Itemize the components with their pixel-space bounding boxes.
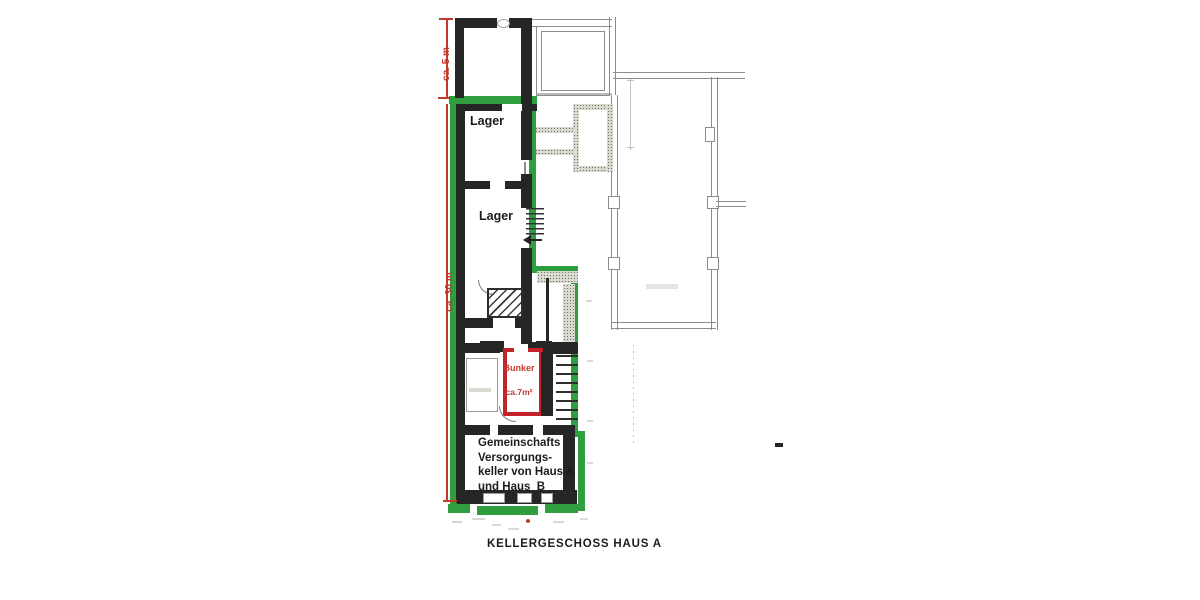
gemeinschafts-line-2: Versorgungs- — [478, 451, 578, 466]
dimension-tick — [439, 18, 453, 20]
pilaster — [608, 196, 620, 209]
room-label-bunker-area: ca.7m² — [503, 387, 535, 397]
wall-segment — [505, 181, 521, 189]
dimension-tick — [627, 80, 634, 81]
wall-segment — [457, 181, 490, 189]
window — [497, 19, 510, 28]
wall-thin-segment — [716, 201, 746, 207]
wall-segment — [457, 318, 493, 328]
boundary-outline-green — [545, 504, 578, 513]
room-label-lager-lower: Lager — [479, 209, 513, 223]
wall-hatched — [563, 284, 575, 344]
stair-direction-arrow — [523, 235, 531, 245]
wall-segment — [521, 174, 532, 208]
wall-segment — [457, 104, 502, 111]
red-mark — [526, 519, 530, 523]
floor-plan-canvas: ca. 5 m ca. 30 m Lager Lager Bunker ca.7… — [0, 0, 1200, 600]
gemeinschafts-line-1: Gemeinschafts — [478, 436, 578, 451]
wall-hatched — [535, 127, 575, 133]
wall-hatched — [607, 104, 613, 172]
wall-segment — [456, 104, 465, 503]
wall-segment — [546, 278, 549, 342]
faint-dimension-mark — [586, 300, 592, 302]
plan-title: KELLERGESCHOSS HAUS A — [487, 538, 662, 550]
staircase-upper — [526, 208, 544, 236]
pilaster — [608, 257, 620, 270]
boundary-outline-green — [448, 504, 470, 513]
room-label-lager-upper: Lager — [470, 114, 504, 128]
wall-hatched — [537, 271, 578, 283]
wall-thin-segment — [611, 322, 716, 329]
wall-thin-segment — [537, 93, 612, 95]
wall-hatched — [535, 149, 575, 155]
pilaster — [707, 257, 719, 270]
room-label-bunker: Bunker — [503, 363, 535, 373]
wall-segment — [521, 111, 532, 160]
dimension-tick — [443, 500, 457, 502]
dimension-label-30m: ca. 30 m — [444, 262, 456, 322]
window — [541, 493, 553, 503]
faint-room-annotation — [646, 284, 678, 289]
faint-dimension-mark — [492, 524, 501, 526]
dimension-tick — [438, 97, 450, 99]
wall-thin-segment — [613, 72, 745, 79]
wall-segment — [515, 318, 532, 328]
room-outline — [466, 358, 498, 412]
stray-mark — [775, 443, 783, 447]
wall-segment — [521, 18, 532, 104]
faint-dimension-mark — [587, 360, 593, 362]
stair-ramp — [487, 288, 523, 318]
room-label-gemeinschaftskeller: Gemeinschafts Versorgungs- keller von Ha… — [478, 436, 578, 494]
wall-segment — [458, 425, 490, 435]
door-gap — [514, 344, 528, 353]
faint-dimension-mark — [452, 521, 462, 523]
staircase-lower — [556, 355, 578, 427]
faint-dimension-mark — [553, 521, 564, 523]
gemeinschafts-line-4: und Haus B — [478, 480, 578, 495]
wall-hatched — [573, 104, 579, 172]
wall-segment — [480, 341, 504, 352]
boundary-outline-green — [477, 506, 538, 515]
wall-segment — [541, 352, 553, 416]
room-outline — [541, 31, 605, 91]
pilaster — [705, 127, 715, 142]
window — [483, 493, 505, 503]
faint-room-annotation — [469, 388, 491, 392]
faint-dimension-mark — [472, 518, 485, 520]
wall-thin-segment — [609, 17, 616, 95]
wall-segment — [455, 18, 464, 98]
door-swing-arc — [499, 406, 516, 422]
dimension-chain — [630, 78, 631, 150]
wall-segment — [498, 425, 533, 435]
dimension-label-5m: ca. 5 m — [441, 34, 453, 94]
faint-dimension-mark — [580, 518, 588, 520]
faint-dimension-mark — [587, 420, 593, 422]
boundary-outline-green — [578, 431, 585, 511]
faint-dimension-mark — [587, 462, 593, 464]
dimension-tick — [627, 147, 634, 148]
dimension-chain — [633, 345, 634, 445]
gemeinschafts-line-3: keller von Haus A — [478, 465, 578, 480]
door-leaf — [524, 162, 526, 174]
faint-dimension-mark — [508, 528, 519, 530]
window — [517, 493, 532, 503]
wall-segment — [522, 104, 537, 111]
